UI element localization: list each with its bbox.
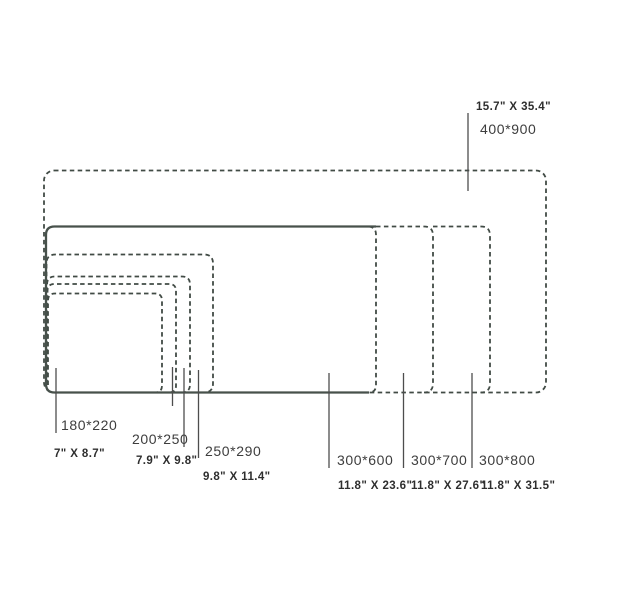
size-rect-inner-outline [48,284,177,393]
size-rect-300x600-right-edge [369,227,376,393]
size-rect-300x800 [433,227,490,393]
size-diagram: 15.7" X 35.4" 400*900 180*220 7" X 8.7" … [0,0,641,589]
size-label-mm-300x700: 300*700 [411,452,467,468]
size-label-inch-180x220: 7" X 8.7" [54,448,105,460]
size-label-inch-400x900: 15.7" X 35.4" [476,101,551,113]
size-rect-300x700 [376,227,433,393]
size-diagram-lines [0,0,641,589]
size-label-mm-200x250: 200*250 [132,431,188,447]
size-label-mm-180x220: 180*220 [61,417,117,433]
size-rect-400x900 [44,171,546,393]
size-rect-250x290 [47,255,214,393]
size-label-mm-300x800: 300*800 [479,452,535,468]
size-label-inch-250x290: 9.8" X 11.4" [203,471,271,483]
size-label-mm-250x290: 250*290 [205,443,261,459]
size-rect-180x220 [48,294,162,393]
size-label-inch-300x700: 11.8" X 27.6" [411,480,485,492]
size-label-inch-300x600: 11.8" X 23.6" [338,480,412,492]
size-label-mm-300x600: 300*600 [337,452,393,468]
size-label-inch-200x250: 7.9" X 9.8" [136,455,197,467]
size-rect-300x600 [46,227,376,393]
size-label-inch-300x800: 11.8" X 31.5" [481,480,555,492]
size-label-mm-400x900: 400*900 [480,121,536,137]
